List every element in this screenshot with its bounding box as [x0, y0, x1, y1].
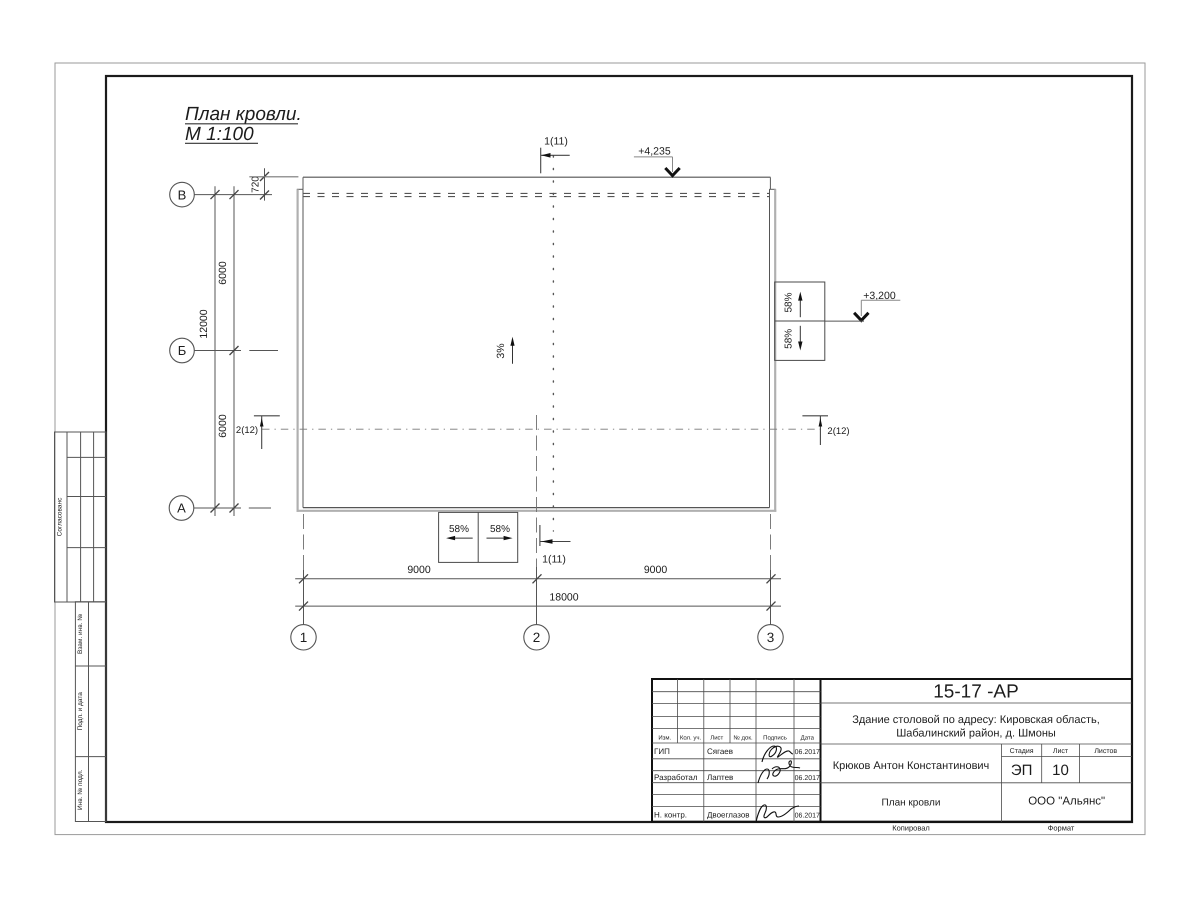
svg-text:Инв. № подл.: Инв. № подл. — [77, 769, 84, 810]
svg-text:Н. контр.: Н. контр. — [654, 811, 687, 820]
svg-text:6000: 6000 — [217, 414, 229, 438]
svg-text:Подпись: Подпись — [763, 735, 787, 742]
svg-text:ЭП: ЭП — [1011, 762, 1033, 779]
svg-text:18000: 18000 — [549, 592, 578, 604]
svg-text:06.2017: 06.2017 — [795, 813, 820, 820]
svg-text:1(11): 1(11) — [544, 136, 568, 148]
svg-text:ООО "Альянс": ООО "Альянс" — [1028, 796, 1105, 808]
svg-text:15-17 -АР: 15-17 -АР — [933, 682, 1019, 703]
svg-text:План кровли.: План кровли. — [185, 104, 302, 125]
svg-text:М 1:100: М 1:100 — [185, 124, 254, 145]
svg-text:58%: 58% — [784, 292, 795, 312]
svg-text:12000: 12000 — [198, 309, 210, 338]
svg-text:ГИП: ГИП — [654, 747, 670, 756]
svg-text:10: 10 — [1052, 762, 1069, 779]
svg-text:План кровли: План кровли — [882, 798, 941, 809]
svg-text:58%: 58% — [784, 329, 795, 349]
svg-text:№ док.: № док. — [733, 735, 753, 742]
svg-text:Лист: Лист — [710, 735, 723, 742]
svg-text:Формат: Формат — [1048, 824, 1075, 833]
svg-text:Крюков Антон Константинович: Крюков Антон Константинович — [833, 760, 990, 772]
svg-text:А: А — [177, 501, 186, 516]
svg-text:58%: 58% — [490, 524, 510, 535]
svg-text:Здание столовой по адресу: Кир: Здание столовой по адресу: Кировская обл… — [852, 714, 1100, 726]
svg-text:720: 720 — [251, 176, 262, 193]
svg-text:Разработал: Разработал — [654, 773, 698, 782]
svg-text:Лаптев: Лаптев — [707, 773, 733, 782]
svg-text:06.2017: 06.2017 — [795, 749, 820, 756]
svg-text:6000: 6000 — [217, 261, 229, 285]
svg-text:Шабалинский район, д. Шмоны: Шабалинский район, д. Шмоны — [896, 728, 1056, 740]
svg-text:9000: 9000 — [644, 564, 668, 576]
svg-text:3%: 3% — [495, 343, 507, 358]
svg-text:Б: Б — [178, 343, 187, 358]
svg-text:Взам. инв. №: Взам. инв. № — [77, 614, 84, 654]
svg-text:2(12): 2(12) — [236, 425, 258, 436]
svg-text:+4,235: +4,235 — [638, 146, 671, 158]
svg-text:9000: 9000 — [407, 564, 431, 576]
svg-text:В: В — [178, 187, 187, 202]
svg-text:Двоеглазов: Двоеглазов — [707, 811, 750, 820]
svg-text:3: 3 — [767, 630, 775, 645]
svg-text:Стадия: Стадия — [1010, 748, 1034, 755]
svg-text:06.2017: 06.2017 — [795, 775, 820, 782]
svg-text:1: 1 — [300, 630, 308, 645]
svg-text:Копировал: Копировал — [892, 824, 930, 833]
svg-text:Дата: Дата — [801, 735, 815, 742]
svg-text:Лист: Лист — [1053, 748, 1069, 755]
svg-text:Сягаев: Сягаев — [707, 747, 733, 756]
svg-text:1(11): 1(11) — [542, 554, 566, 566]
svg-text:Кол. уч.: Кол. уч. — [680, 735, 702, 742]
svg-text:2: 2 — [533, 630, 541, 645]
svg-text:Подп. и дата: Подп. и дата — [77, 692, 84, 731]
svg-text:58%: 58% — [449, 524, 469, 535]
svg-text:Изм.: Изм. — [658, 735, 671, 742]
svg-text:Согласованс: Согласованс — [57, 497, 64, 536]
svg-text:Листов: Листов — [1094, 748, 1117, 755]
svg-text:2(12): 2(12) — [827, 426, 849, 437]
